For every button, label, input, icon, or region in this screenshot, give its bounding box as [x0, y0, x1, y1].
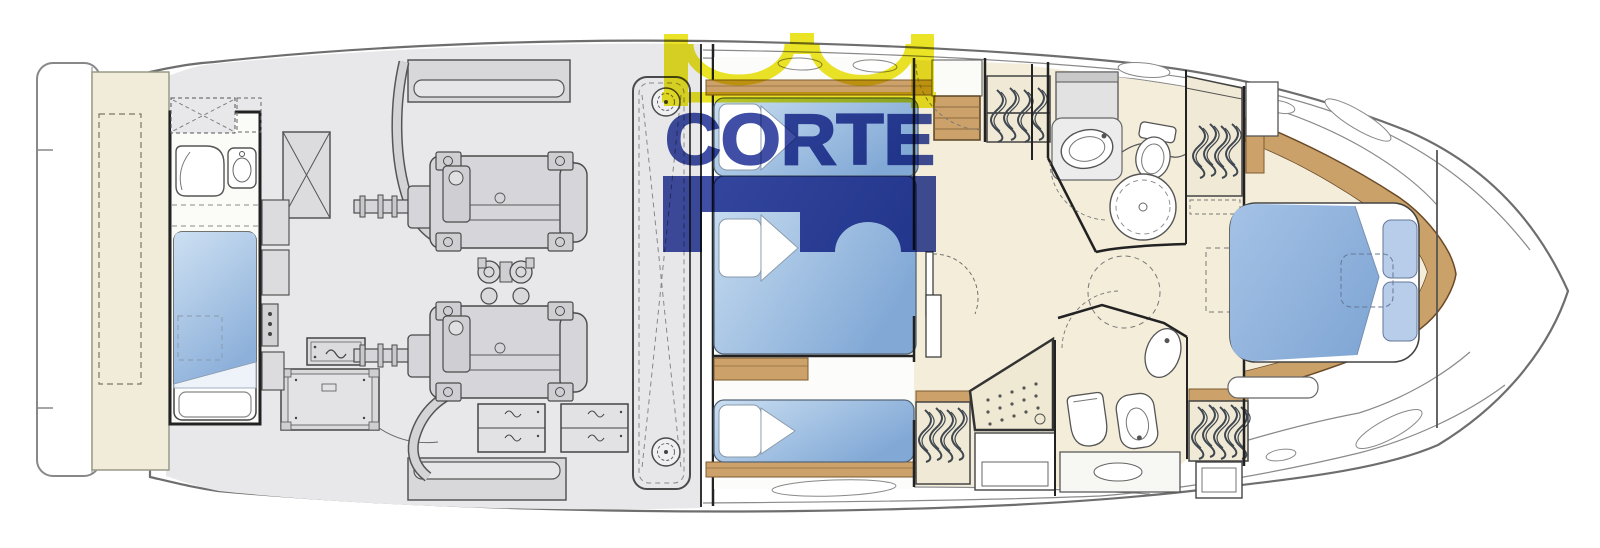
- svg-text:CORTE: CORTE: [665, 101, 935, 180]
